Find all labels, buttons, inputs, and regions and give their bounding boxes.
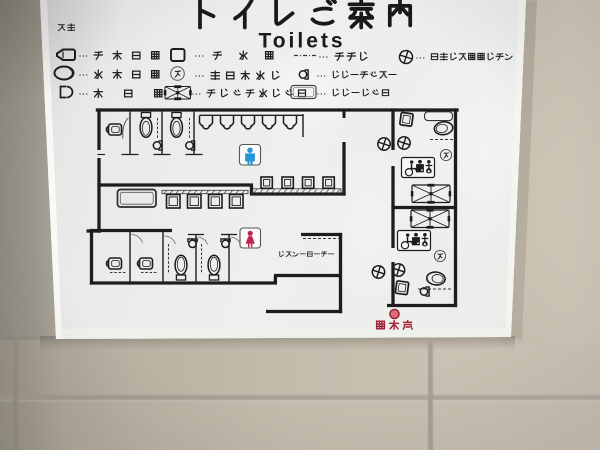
svg-text:Toilets: Toilets: [258, 30, 345, 53]
